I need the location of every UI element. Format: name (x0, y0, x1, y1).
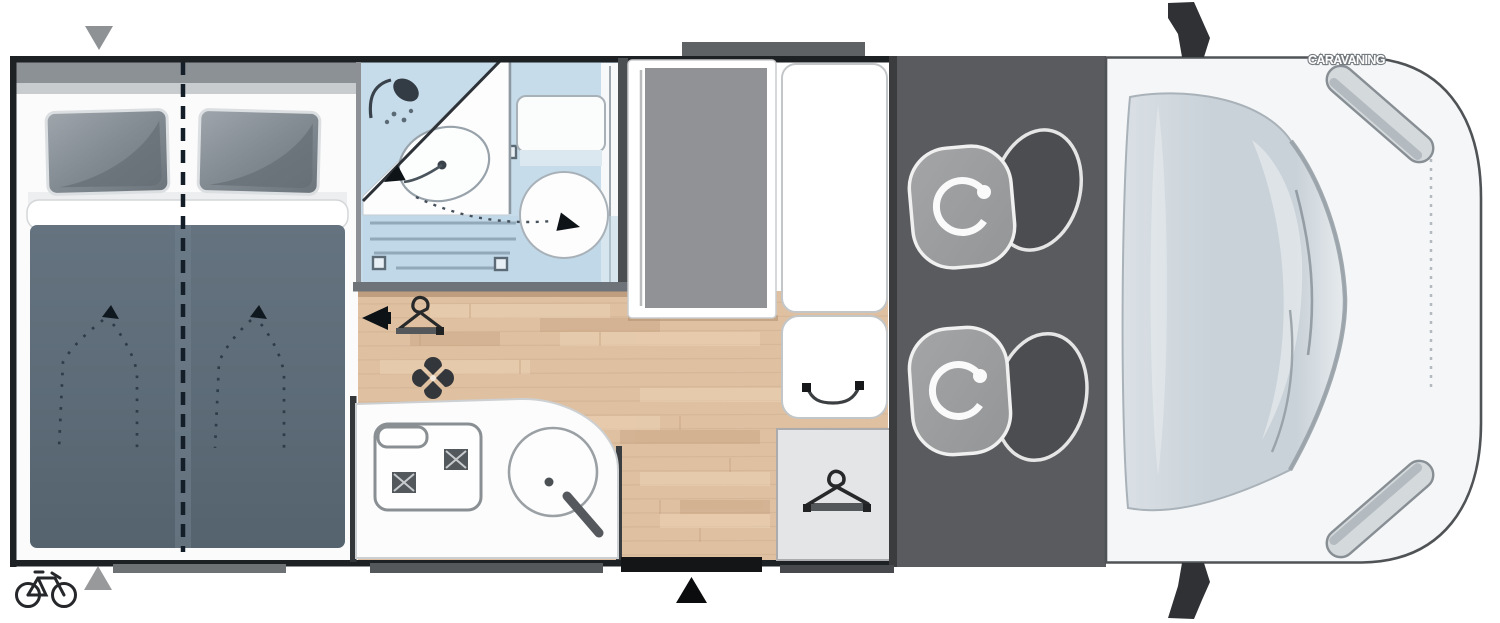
svg-text:CARAVANING: CARAVANING (1308, 53, 1385, 67)
